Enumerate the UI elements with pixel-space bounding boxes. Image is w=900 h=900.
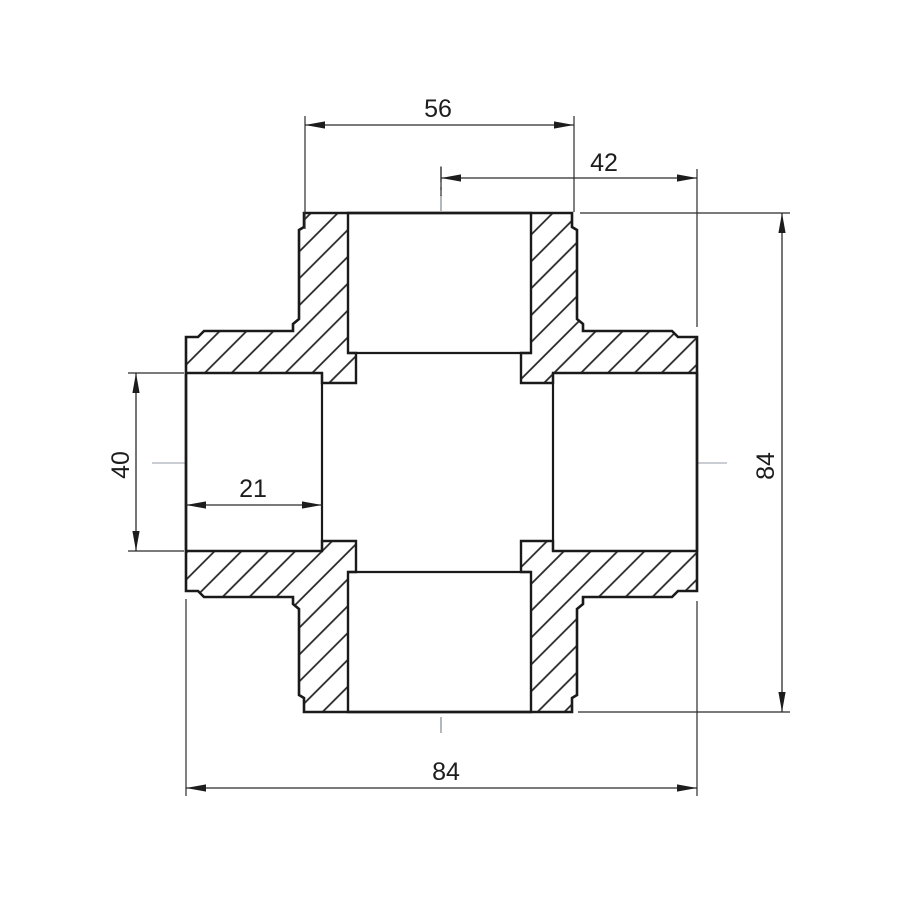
arrowhead-left bbox=[186, 784, 206, 791]
arrowhead-down bbox=[132, 531, 139, 551]
cross-fitting-section-drawing: 56 42 40 21 84 bbox=[0, 0, 900, 900]
arrowhead-up bbox=[132, 373, 139, 393]
arrowhead-left bbox=[305, 121, 325, 128]
arrowhead-left bbox=[441, 174, 461, 181]
arrowhead-up bbox=[778, 213, 785, 233]
dimension-label-56: 56 bbox=[424, 95, 452, 123]
body-section bbox=[186, 213, 697, 712]
dimension-label-40: 40 bbox=[107, 451, 135, 479]
dimension-top-socket-width: 56 bbox=[305, 95, 574, 229]
dimension-label-84-height: 84 bbox=[752, 452, 780, 480]
dimension-label-42: 42 bbox=[590, 149, 618, 177]
arrowhead-right bbox=[554, 121, 574, 128]
technical-drawing-page: 56 42 40 21 84 bbox=[0, 0, 900, 900]
dimension-label-21: 21 bbox=[239, 475, 267, 503]
arrowhead-right bbox=[677, 174, 697, 181]
arrowhead-right bbox=[677, 784, 697, 791]
dimension-socket-bore: 40 bbox=[107, 373, 184, 551]
body-fill bbox=[186, 213, 697, 712]
arrowhead-down bbox=[778, 692, 785, 712]
dimension-label-84-width: 84 bbox=[432, 758, 460, 786]
